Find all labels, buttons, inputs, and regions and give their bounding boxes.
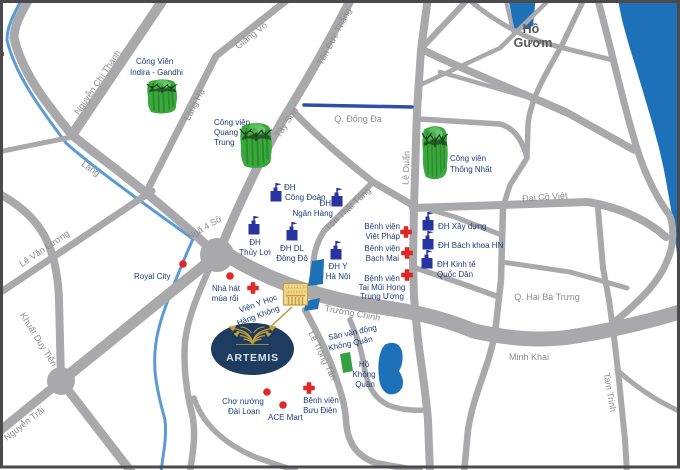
svg-text:ĐH Xây dựng: ĐH Xây dựng <box>438 222 487 231</box>
svg-text:Ngân Hàng: Ngân Hàng <box>293 209 333 218</box>
svg-text:Indira - Gandhi: Indira - Gandhi <box>130 68 183 77</box>
svg-text:Lê Duẩn: Lê Duẩn <box>400 151 411 185</box>
svg-text:ĐH: ĐH <box>284 183 296 192</box>
svg-text:múa rối: múa rối <box>212 294 239 303</box>
svg-text:Việt Pháp: Việt Pháp <box>365 232 400 241</box>
svg-text:Royal City: Royal City <box>134 272 170 281</box>
svg-text:ĐH: ĐH <box>319 199 331 208</box>
svg-text:Bạch Mai: Bạch Mai <box>366 254 400 263</box>
svg-text:ĐH Y: ĐH Y <box>329 262 349 271</box>
svg-text:Quân: Quân <box>355 380 375 389</box>
svg-text:Công viên: Công viên <box>450 154 486 163</box>
svg-text:Thủy Lợi: Thủy Lợi <box>239 248 271 257</box>
svg-text:Chợ nướng: Chợ nướng <box>222 397 264 406</box>
svg-text:ĐH Kinh tế: ĐH Kinh tế <box>437 260 476 269</box>
svg-text:Bệnh viện: Bệnh viện <box>364 274 400 283</box>
svg-text:ĐH Bách khoa HN: ĐH Bách khoa HN <box>438 241 504 250</box>
svg-text:Không: Không <box>352 370 375 379</box>
svg-text:Q. Đống Đa: Q. Đống Đa <box>334 114 382 124</box>
svg-text:Trung Ương: Trung Ương <box>360 292 404 301</box>
svg-text:ĐH DL: ĐH DL <box>280 244 305 253</box>
svg-text:Nhà hát: Nhà hát <box>212 284 241 293</box>
svg-text:Quang: Quang <box>214 128 238 137</box>
svg-text:Q. Hai Bà Trưng: Q. Hai Bà Trưng <box>514 292 580 302</box>
svg-text:Quốc Dân: Quốc Dân <box>437 270 473 279</box>
svg-text:ARTEMIS: ARTEMIS <box>226 352 279 364</box>
svg-text:Trung: Trung <box>214 138 235 147</box>
svg-text:Hồ: Hồ <box>523 22 540 36</box>
svg-text:Bưu Điện: Bưu Điện <box>303 406 337 415</box>
svg-text:Công viên: Công viên <box>214 118 250 127</box>
svg-text:ACE Mart: ACE Mart <box>268 413 303 422</box>
svg-text:Đài Loan: Đài Loan <box>228 407 260 416</box>
svg-text:Hà Nội: Hà Nội <box>326 272 351 281</box>
svg-text:Thống Nhất: Thống Nhất <box>450 165 493 174</box>
svg-text:Bệnh viện: Bệnh viện <box>364 244 400 253</box>
svg-text:ĐH: ĐH <box>249 238 261 247</box>
svg-text:Bệnh viện: Bệnh viện <box>364 222 400 231</box>
svg-text:Đông Đô: Đông Đô <box>276 254 308 263</box>
svg-text:Bệnh viện: Bệnh viện <box>303 396 339 405</box>
svg-text:Minh Khai: Minh Khai <box>509 352 549 362</box>
svg-text:Tai Mũi Họng: Tai Mũi Họng <box>359 283 406 292</box>
svg-text:Gươm: Gươm <box>514 36 553 50</box>
svg-text:Hồ: Hồ <box>359 360 370 369</box>
svg-text:Công Viên: Công Viên <box>136 57 173 66</box>
